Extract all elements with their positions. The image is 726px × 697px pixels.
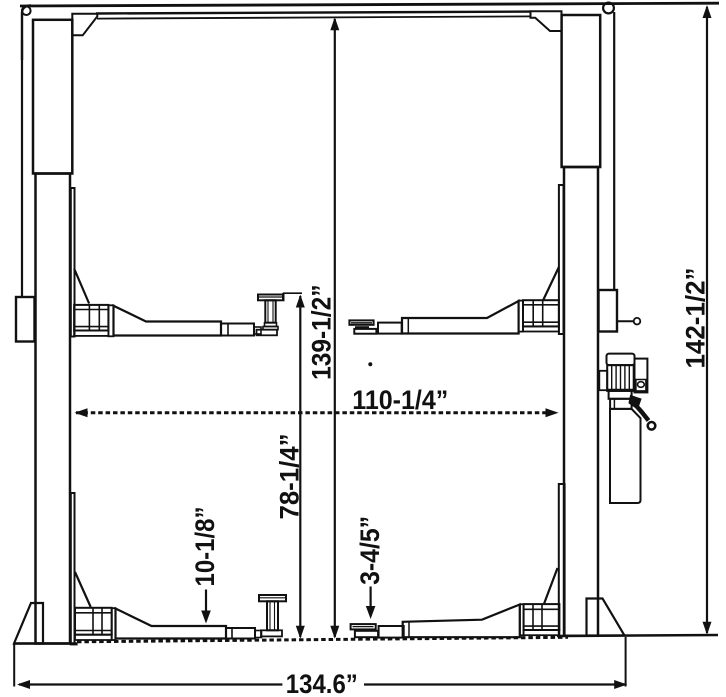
svg-text:110-1/4”: 110-1/4” (352, 385, 448, 415)
svg-text:142-1/2”: 142-1/2” (681, 268, 711, 369)
svg-text:10-1/8”: 10-1/8” (190, 507, 220, 587)
svg-text:3-4/5”: 3-4/5” (355, 516, 385, 585)
svg-text:78-1/4”: 78-1/4” (275, 434, 305, 520)
svg-text:134.6”: 134.6” (286, 669, 358, 697)
svg-text:139-1/2”: 139-1/2” (307, 285, 337, 380)
